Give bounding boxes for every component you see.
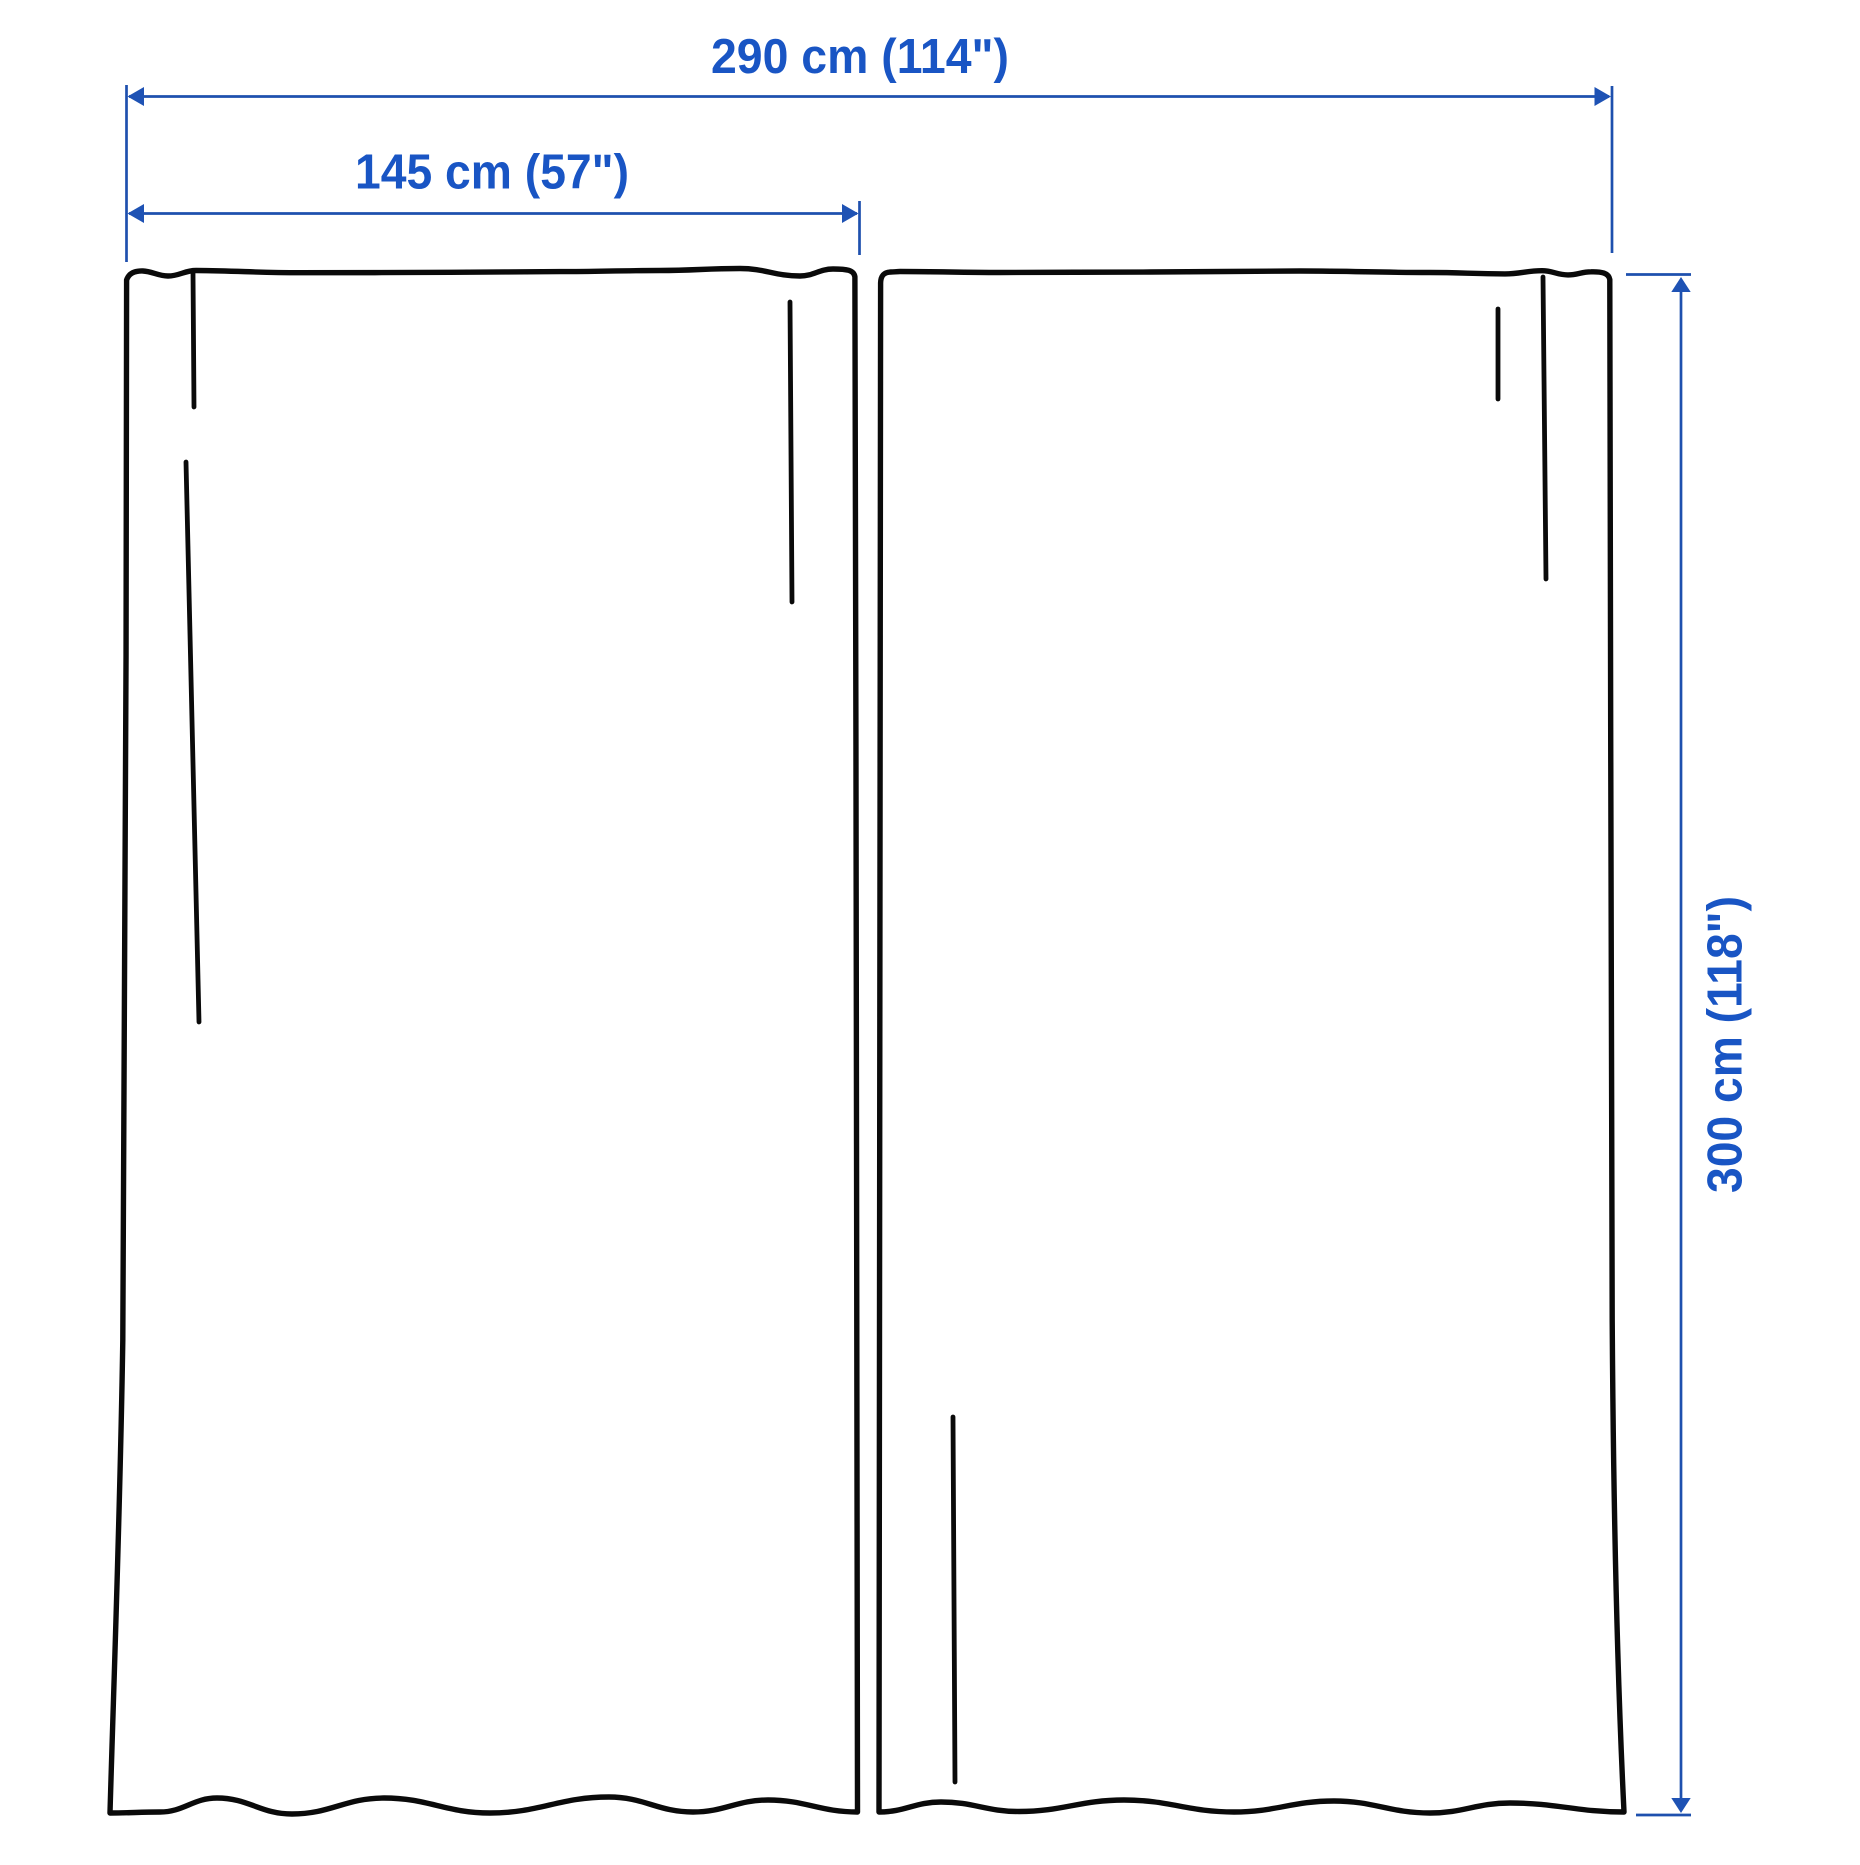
svg-text:290 cm (114"): 290 cm (114") [711, 30, 1009, 84]
svg-text:145 cm (57"): 145 cm (57") [355, 146, 629, 200]
svg-text:300 cm (118"): 300 cm (118") [1699, 896, 1753, 1193]
